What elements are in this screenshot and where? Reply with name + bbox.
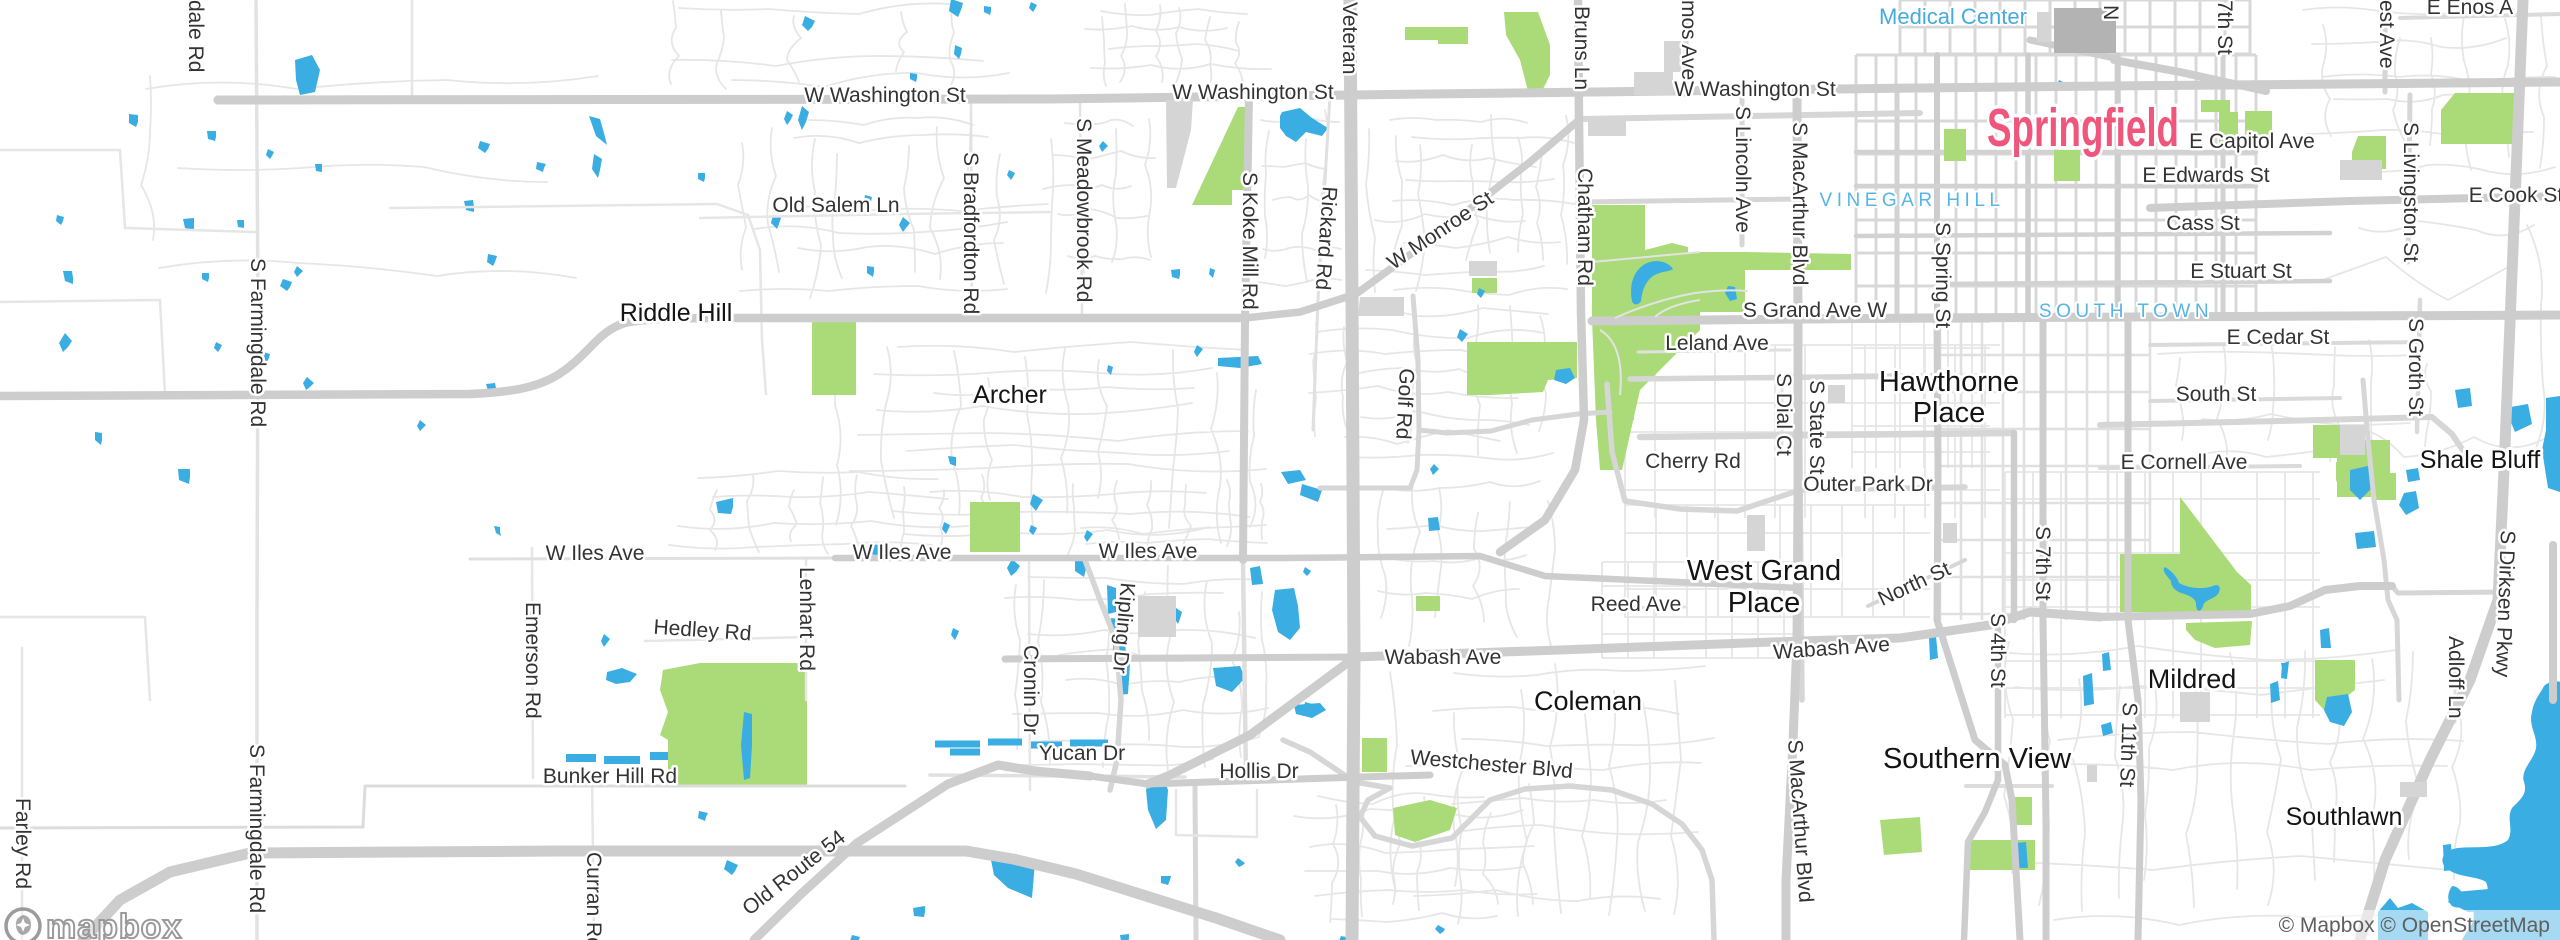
- svg-text:Southlawn: Southlawn: [2286, 803, 2403, 831]
- svg-text:Hawthorne: Hawthorne: [1879, 366, 2019, 398]
- svg-text:W Iles Ave: W Iles Ave: [1099, 540, 1198, 563]
- svg-text:S 4th St: S 4th St: [1986, 613, 2009, 688]
- svg-text:E Enos A: E Enos A: [2427, 0, 2513, 19]
- svg-text:E Stuart St: E Stuart St: [2190, 260, 2292, 283]
- svg-text:dale Rd: dale Rd: [184, 0, 207, 72]
- svg-text:Archer: Archer: [973, 381, 1047, 409]
- svg-text:N: N: [2099, 5, 2122, 20]
- svg-text:Bunker Hill Rd: Bunker Hill Rd: [543, 765, 677, 788]
- svg-text:Golf Rd: Golf Rd: [1391, 368, 1418, 440]
- svg-text:Hollis Dr: Hollis Dr: [1219, 760, 1298, 783]
- svg-text:W Washington St: W Washington St: [1172, 81, 1334, 104]
- svg-text:Riddle Hill: Riddle Hill: [620, 299, 733, 327]
- svg-text:S Meadowbrook Rd: S Meadowbrook Rd: [1072, 118, 1095, 302]
- svg-text:Yucan Dr: Yucan Dr: [1039, 742, 1125, 765]
- svg-text:Old Salem Ln: Old Salem Ln: [772, 194, 899, 217]
- svg-text:Cass St: Cass St: [2166, 212, 2240, 235]
- svg-text:Emerson Rd: Emerson Rd: [521, 602, 544, 719]
- svg-text:West Grand: West Grand: [1687, 555, 1841, 587]
- svg-text:S Lincoln Ave: S Lincoln Ave: [1731, 106, 1754, 233]
- svg-text:South St: South St: [2176, 383, 2257, 406]
- svg-text:S 11th St: S 11th St: [2115, 702, 2141, 788]
- svg-text:E Capitol Ave: E Capitol Ave: [2189, 130, 2315, 153]
- svg-text:Springfield: Springfield: [1987, 98, 2179, 158]
- svg-text:W Washington St: W Washington St: [1674, 78, 1836, 101]
- svg-text:Shale Bluff: Shale Bluff: [2420, 446, 2541, 474]
- svg-text:Reed Ave: Reed Ave: [1591, 593, 1682, 616]
- svg-text:E Edwards St: E Edwards St: [2142, 164, 2269, 187]
- svg-text:mos Ave: mos Ave: [1677, 0, 1700, 80]
- svg-text:S MacArthur Blvd: S MacArthur Blvd: [1788, 122, 1811, 285]
- svg-text:S Farmingdale Rd: S Farmingdale Rd: [246, 258, 269, 427]
- svg-text:Cherry Rd: Cherry Rd: [1645, 450, 1741, 473]
- svg-text:W Washington St: W Washington St: [804, 84, 966, 107]
- svg-text:Leland Ave: Leland Ave: [1665, 332, 1769, 355]
- svg-text:SOUTH TOWN: SOUTH TOWN: [2039, 301, 2213, 322]
- svg-text:S Farmingdale Rd: S Farmingdale Rd: [245, 744, 268, 913]
- svg-text:Farley Rd: Farley Rd: [11, 798, 34, 889]
- svg-text:Cronin Dr: Cronin Dr: [1019, 645, 1042, 735]
- svg-text:E Cornell Ave: E Cornell Ave: [2121, 451, 2248, 474]
- svg-text:Veteran: Veteran: [1338, 2, 1361, 74]
- svg-text:S Koke Mill Rd: S Koke Mill Rd: [1238, 172, 1261, 310]
- svg-text:Lenhart Rd: Lenhart Rd: [795, 567, 818, 671]
- svg-text:Place: Place: [1913, 397, 1986, 429]
- svg-text:© Mapbox © OpenStreetMap: © Mapbox © OpenStreetMap: [2279, 914, 2550, 937]
- svg-text:Coleman: Coleman: [1534, 686, 1642, 716]
- svg-text:Bruns Ln: Bruns Ln: [1570, 6, 1593, 90]
- svg-text:Adloff Ln: Adloff Ln: [2444, 636, 2467, 719]
- svg-text:S Groth St: S Groth St: [2404, 318, 2427, 416]
- svg-text:S Spring St: S Spring St: [1931, 222, 1954, 328]
- svg-text:est Ave: est Ave: [2375, 0, 2398, 69]
- svg-text:Mildred: Mildred: [2148, 664, 2237, 694]
- svg-text:S Livingston St: S Livingston St: [2399, 122, 2422, 262]
- svg-text:Outer Park Dr: Outer Park Dr: [1803, 473, 1933, 496]
- svg-text:Wabash Ave: Wabash Ave: [1385, 646, 1502, 669]
- svg-text:mapbox: mapbox: [46, 908, 182, 940]
- svg-text:S 7th St: S 7th St: [2031, 526, 2054, 601]
- svg-text:E Cedar St: E Cedar St: [2227, 326, 2330, 349]
- svg-text:7th St: 7th St: [2213, 0, 2236, 55]
- svg-text:S Dial Ct: S Dial Ct: [1772, 373, 1795, 456]
- svg-text:Medical Center: Medical Center: [1879, 4, 2027, 29]
- svg-text:Southern View: Southern View: [1883, 743, 2072, 775]
- svg-text:Chatham Rd: Chatham Rd: [1573, 168, 1596, 286]
- svg-text:W Iles Ave: W Iles Ave: [853, 541, 952, 564]
- svg-text:S Bradfordton Rd: S Bradfordton Rd: [959, 152, 982, 314]
- svg-text:E Cook St: E Cook St: [2469, 184, 2560, 207]
- svg-text:S Grand Ave W: S Grand Ave W: [1743, 299, 1888, 322]
- svg-text:S State St: S State St: [1805, 380, 1828, 475]
- svg-text:VINEGAR HILL: VINEGAR HILL: [1820, 190, 2005, 211]
- svg-text:W Iles Ave: W Iles Ave: [546, 542, 645, 565]
- svg-text:Place: Place: [1728, 587, 1801, 619]
- svg-text:Curran Rd: Curran Rd: [582, 852, 605, 940]
